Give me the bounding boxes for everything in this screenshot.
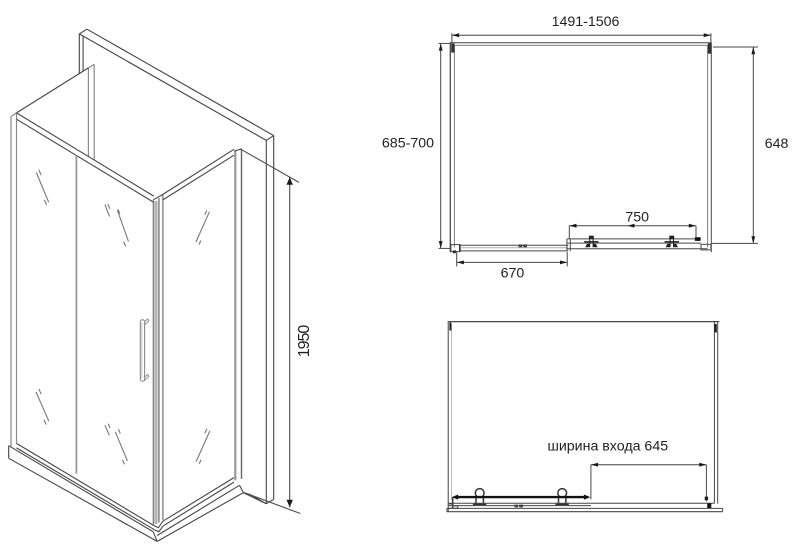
svg-text:1950: 1950 (296, 325, 313, 358)
svg-text:670: 670 (501, 265, 525, 281)
svg-text:1491-1506: 1491-1506 (552, 14, 620, 30)
svg-text:685-700: 685-700 (382, 135, 434, 151)
svg-text:648: 648 (765, 136, 789, 152)
svg-text:750: 750 (625, 210, 649, 226)
svg-text:ширина входа 645: ширина входа 645 (547, 438, 668, 454)
